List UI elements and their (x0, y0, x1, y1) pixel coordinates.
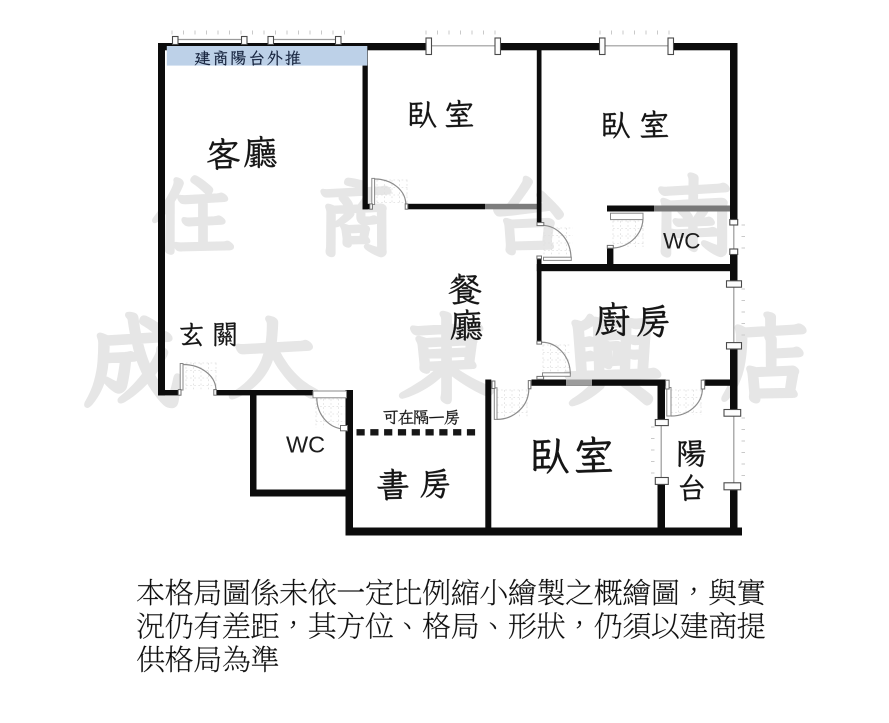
svg-text:WC: WC (286, 431, 325, 457)
svg-text:WC: WC (663, 228, 701, 253)
